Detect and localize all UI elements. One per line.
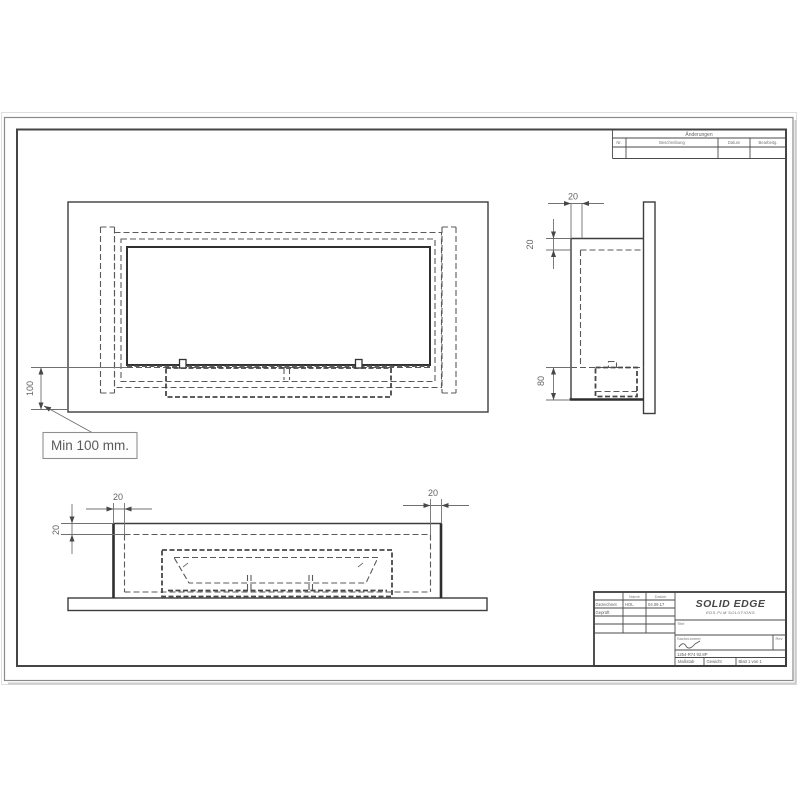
titleblock-title-label: Titel <box>677 621 685 626</box>
revision-table-title: Änderungen <box>685 131 712 138</box>
titleblock-sheet-label: Blatt 1 von 1 <box>739 659 763 664</box>
titleblock-doc-number: 1254-R74 92.8P <box>677 652 708 657</box>
side-dim-depth-label: 20 <box>568 192 578 202</box>
titleblock-col-name: Name <box>629 594 640 599</box>
revision-col-edit: Bearbeitg. <box>758 140 777 145</box>
clip-right <box>356 360 363 369</box>
clip-left <box>180 360 187 369</box>
sheet-border <box>2 113 797 685</box>
side-dim-wall-label: 20 <box>525 239 535 249</box>
titleblock-row-drawn: Gezeichnet <box>596 602 618 607</box>
titleblock-rev-label: Rev <box>776 636 783 641</box>
side-dim-burner-label: 80 <box>536 376 546 386</box>
titleblock-partno-label: Sachnummer <box>677 636 701 641</box>
titleblock-weight-label: Gewicht <box>707 659 723 664</box>
titleblock-drawn-name: HOL <box>625 602 634 607</box>
bottom-dim-right-label: 20 <box>428 488 438 498</box>
drawing-sheet: Änderungen Nr. Beschreibung Datum Bearbe… <box>0 0 800 800</box>
titleblock-scale-label: Maßstab <box>678 659 695 664</box>
revision-col-date: Datum <box>728 140 741 145</box>
bottom-dim-left-label: 20 <box>113 492 123 502</box>
solid-edge-logo-sub: EDS-PLM SOLUTIONS <box>706 610 755 615</box>
bottom-dim-wall-label: 20 <box>51 525 61 535</box>
titleblock-row-checked: Geprüft <box>596 610 611 615</box>
dim-100-label: 100 <box>25 381 35 396</box>
titleblock-col-date: Datum <box>655 594 667 599</box>
titleblock-drawn-date: 04.09.17 <box>648 602 665 607</box>
revision-col-nr: Nr. <box>616 140 621 145</box>
revision-col-desc: Beschreibung <box>659 140 685 145</box>
note-text: Min 100 mm. <box>51 438 129 453</box>
solid-edge-logo: SOLID EDGE <box>696 598 766 610</box>
